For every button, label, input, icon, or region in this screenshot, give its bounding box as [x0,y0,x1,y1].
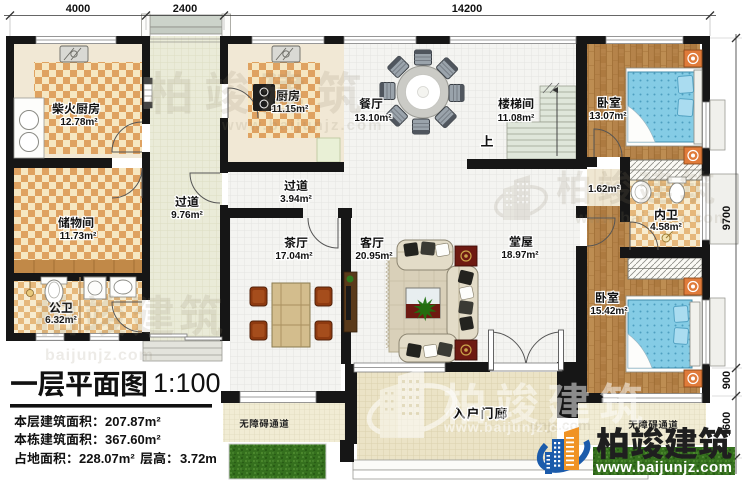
svg-text:1:100: 1:100 [153,368,221,398]
svg-text:4.58m²: 4.58m² [650,222,682,233]
svg-text:12.78m²: 12.78m² [60,117,98,128]
svg-text:3.72m: 3.72m [180,451,217,466]
svg-text:4000: 4000 [66,3,90,15]
svg-text:207.87m²: 207.87m² [105,414,161,429]
svg-text:baijunjz.com: baijunjz.com [45,347,154,364]
svg-text:228.07m²: 228.07m² [79,451,135,466]
svg-text:18.97m²: 18.97m² [501,250,539,261]
svg-text:www.baijunjz.com: www.baijunjz.com [595,459,732,476]
svg-text:13.10m²: 13.10m² [354,113,392,124]
svg-text:11.73m²: 11.73m² [60,231,97,242]
svg-text:15.42m²: 15.42m² [590,306,628,317]
svg-text:2400: 2400 [173,3,197,15]
svg-text:11.08m²: 11.08m² [498,113,535,124]
svg-text:13.07m²: 13.07m² [589,111,627,122]
svg-text:20.95m²: 20.95m² [355,251,393,262]
svg-text:14200: 14200 [452,3,483,15]
svg-text:9700: 9700 [721,206,733,230]
svg-text:17.04m²: 17.04m² [275,251,313,262]
svg-text:367.60m²: 367.60m² [105,432,161,447]
svg-text:3.94m²: 3.94m² [280,194,312,205]
svg-text:9.76m²: 9.76m² [171,210,203,221]
svg-text:900: 900 [721,371,733,389]
